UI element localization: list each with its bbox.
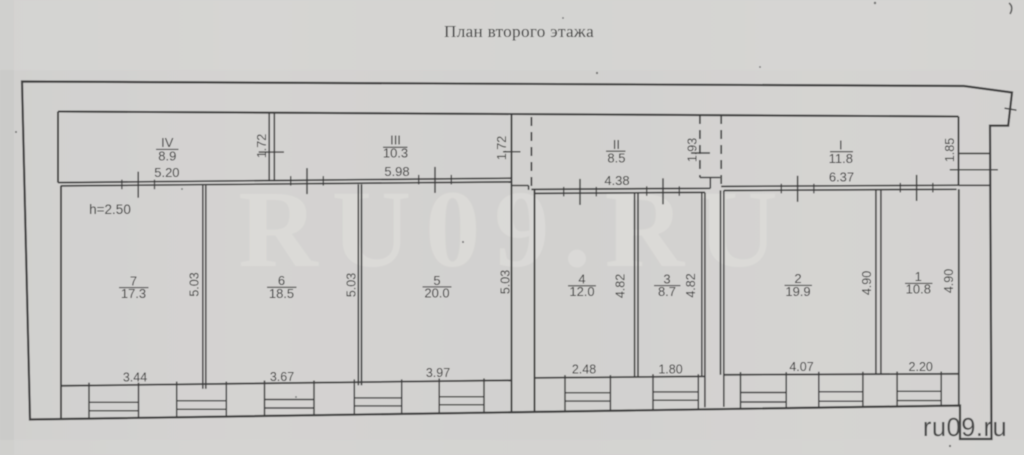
svg-text:4.90: 4.90 — [942, 269, 956, 293]
svg-text:4.38: 4.38 — [604, 173, 629, 188]
svg-text:10.3: 10.3 — [383, 146, 408, 161]
svg-text:1.72: 1.72 — [495, 136, 509, 160]
svg-text:1.85: 1.85 — [943, 138, 957, 162]
svg-text:4.07: 4.07 — [789, 360, 813, 374]
svg-text:1.80: 1.80 — [658, 363, 682, 377]
svg-text:8.5: 8.5 — [607, 150, 625, 165]
svg-text:3.44: 3.44 — [123, 371, 147, 385]
svg-text:4.82: 4.82 — [613, 274, 627, 298]
svg-text:4.90: 4.90 — [860, 271, 874, 295]
svg-text:5.20: 5.20 — [154, 165, 179, 180]
svg-text:ru09.ru: ru09.ru — [923, 414, 1007, 442]
svg-text:План второго этажа: План второго этажа — [444, 22, 594, 41]
svg-text:1.93: 1.93 — [686, 138, 700, 162]
svg-text:11.8: 11.8 — [829, 151, 853, 166]
svg-text:6.37: 6.37 — [829, 170, 854, 185]
svg-text:8.7: 8.7 — [658, 284, 676, 299]
svg-text:20.0: 20.0 — [424, 285, 449, 300]
svg-text:5.03: 5.03 — [344, 273, 358, 297]
svg-text:4.82: 4.82 — [684, 273, 698, 297]
svg-text:2.48: 2.48 — [572, 363, 596, 377]
svg-text:5.98: 5.98 — [384, 164, 409, 179]
svg-text:5.03: 5.03 — [188, 272, 202, 296]
svg-text:h=2.50: h=2.50 — [89, 202, 131, 217]
svg-text:8.9: 8.9 — [158, 148, 176, 163]
svg-text:3.97: 3.97 — [426, 366, 450, 380]
svg-text:5.03: 5.03 — [498, 270, 512, 294]
svg-text:1.72: 1.72 — [255, 134, 269, 158]
svg-text:12.0: 12.0 — [569, 284, 594, 299]
svg-text:3.67: 3.67 — [270, 370, 294, 384]
svg-text:18.5: 18.5 — [269, 286, 294, 301]
svg-text:17.3: 17.3 — [121, 286, 146, 301]
svg-text:2.20: 2.20 — [909, 360, 933, 374]
svg-text:10.8: 10.8 — [906, 282, 931, 297]
svg-text:19.9: 19.9 — [785, 284, 810, 299]
